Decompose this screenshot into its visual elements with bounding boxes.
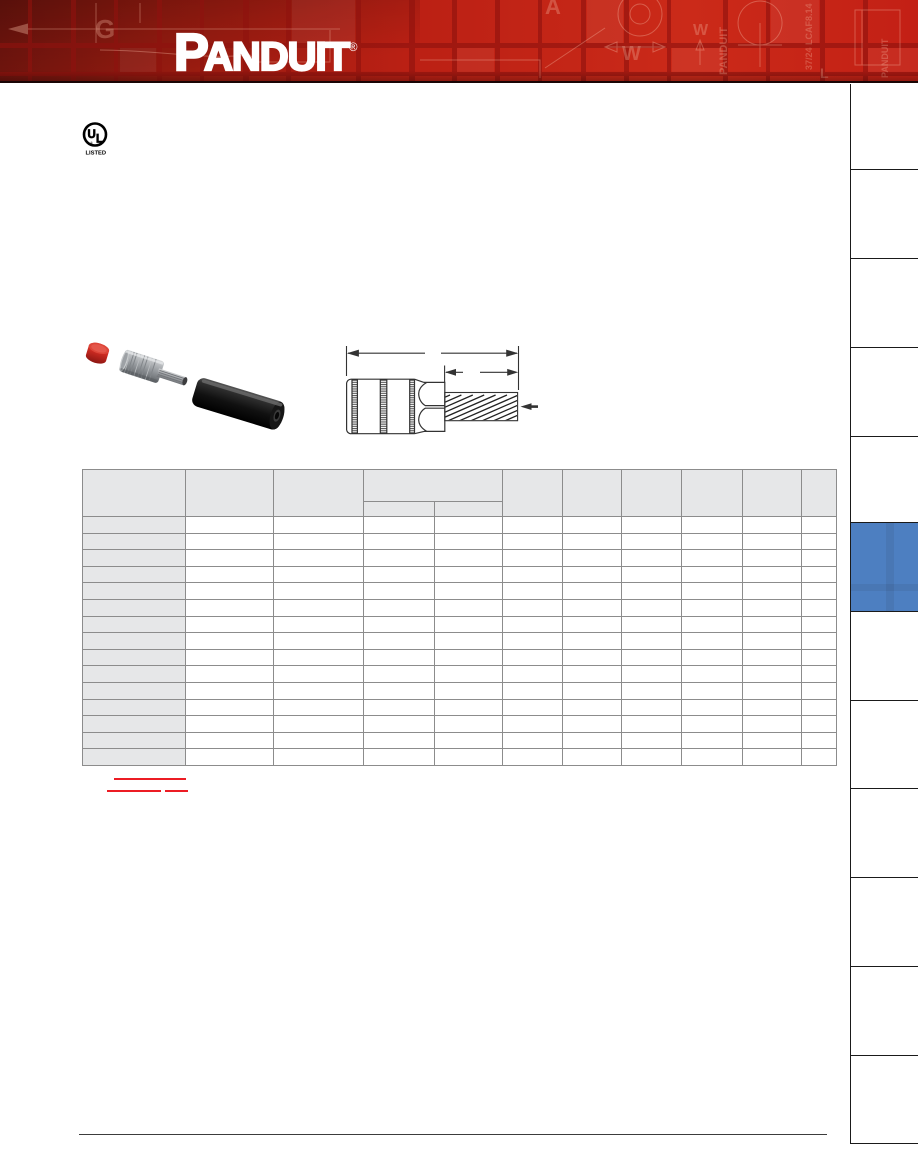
svg-text:L: L	[96, 134, 103, 146]
svg-text:®: ®	[90, 141, 93, 146]
svg-text:ANDUIT: ANDUIT	[204, 35, 350, 76]
svg-text:U: U	[88, 129, 96, 141]
svg-text:LISTED: LISTED	[86, 151, 107, 157]
svg-text:®: ®	[349, 42, 358, 54]
